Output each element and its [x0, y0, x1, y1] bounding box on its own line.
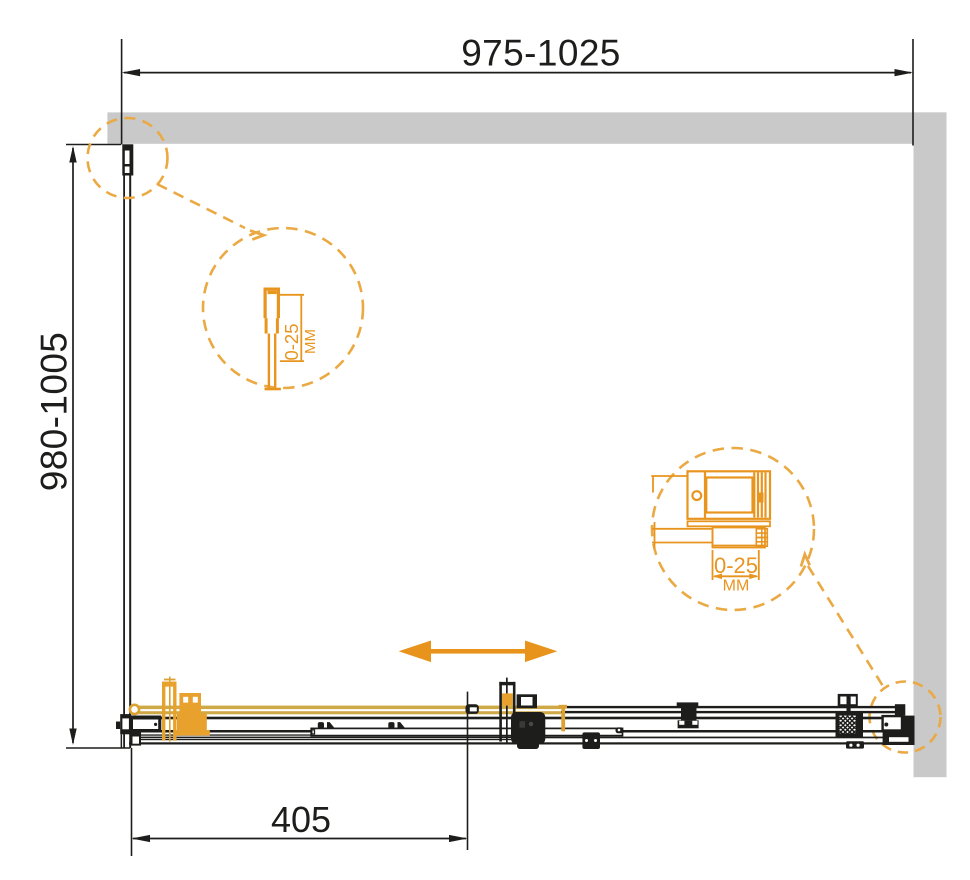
svg-text:405: 405	[271, 799, 331, 840]
svg-text:MM: MM	[723, 578, 750, 595]
svg-text:0-25: 0-25	[281, 323, 302, 360]
svg-text:MM: MM	[302, 329, 319, 354]
svg-text:980-1005: 980-1005	[34, 332, 75, 492]
svg-text:0-25: 0-25	[714, 553, 758, 578]
svg-text:975-1025: 975-1025	[461, 33, 621, 74]
